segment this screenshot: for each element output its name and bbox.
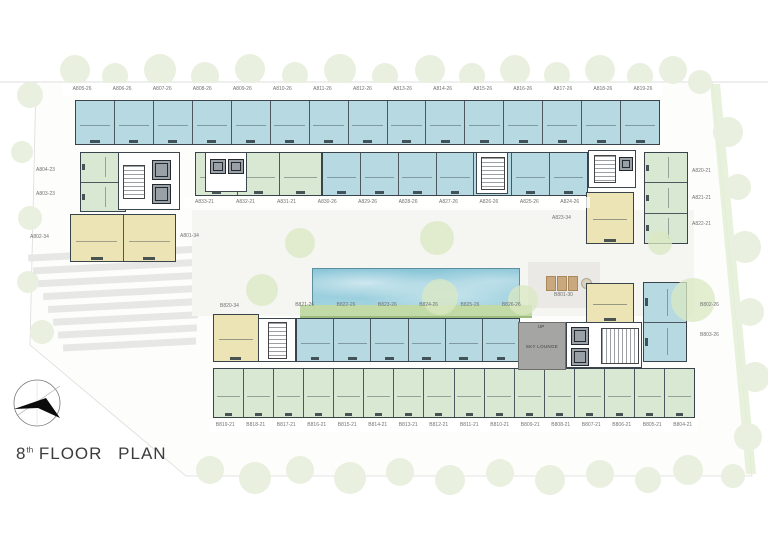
unit-label: A802-34 — [30, 234, 49, 240]
unit-cell — [465, 101, 504, 144]
tree — [635, 467, 661, 493]
tree — [30, 320, 54, 344]
unit-cell — [232, 101, 271, 144]
tree — [386, 458, 414, 486]
tree — [729, 231, 761, 263]
unit-label: A809-26 — [222, 86, 262, 93]
tree — [17, 82, 43, 108]
unit-label: A831-21 — [266, 199, 307, 206]
unit-label: B817-21 — [271, 422, 302, 429]
unit-label: A813-26 — [383, 86, 423, 93]
unit-label: B824-26 — [408, 302, 449, 312]
unit-strip-b-bottom — [213, 368, 695, 418]
tree — [144, 54, 176, 86]
unit-label: A826-26 — [469, 199, 509, 206]
row-b-mid-labels: B821-26B822-26B823-26B824-26B825-26B826-… — [284, 302, 532, 312]
tree — [586, 460, 614, 488]
unit-cell — [582, 101, 621, 144]
tree — [324, 54, 356, 86]
unit-label: A806-26 — [102, 86, 142, 93]
unit-label: A818-26 — [583, 86, 623, 93]
unit-cell — [545, 369, 575, 417]
unit-cell — [512, 153, 550, 195]
unit-label: A816-26 — [503, 86, 543, 93]
unit-label: A803-23 — [36, 191, 78, 198]
left-green-labels: A804-23A803-23 — [36, 158, 78, 206]
unit-cell — [424, 369, 454, 417]
tree — [486, 459, 514, 487]
unit-cell — [485, 369, 515, 417]
unit-cell — [214, 369, 244, 417]
unit-label: B804-21 — [668, 422, 699, 429]
unit-cell — [483, 319, 519, 361]
elevator — [152, 160, 171, 180]
tree — [688, 70, 712, 94]
tree — [235, 54, 265, 84]
unit-cell — [349, 101, 388, 144]
unit-cell — [280, 153, 321, 195]
unit-label: A821-21 — [692, 195, 732, 202]
unit-label: A827-26 — [428, 199, 468, 206]
tree — [435, 465, 465, 495]
unit-label: A825-26 — [509, 199, 549, 206]
unit-b820 — [213, 314, 259, 362]
sky-lounge-label: SKY LOUNGE — [526, 344, 558, 349]
floor-number-suffix: th — [26, 445, 33, 454]
unit-strip-left-yellow — [70, 214, 176, 262]
unit-label: B809-21 — [515, 422, 546, 429]
unit-cell — [193, 101, 232, 144]
unit-cell — [124, 215, 176, 261]
unit-label: A808-26 — [182, 86, 222, 93]
tree — [673, 455, 703, 485]
elevator — [571, 327, 589, 345]
unit-cell — [154, 101, 193, 144]
unit-cell — [635, 369, 665, 417]
unit-label: A833-21 — [184, 199, 225, 206]
right-b-labels: B802-26B803-26 — [700, 290, 740, 350]
tree — [18, 206, 42, 230]
unit-cell — [334, 319, 371, 361]
unit-strip-b-mid — [296, 318, 520, 362]
unit-cell — [605, 369, 635, 417]
unit-cell — [323, 153, 361, 195]
unit-cell — [244, 369, 274, 417]
tree — [713, 117, 743, 147]
elevator-core — [205, 152, 247, 192]
tree — [585, 55, 615, 85]
stairs — [123, 165, 145, 199]
unit-cell — [71, 215, 124, 261]
unit-label: B814-21 — [363, 422, 394, 429]
stair-core — [476, 152, 508, 194]
tree — [535, 465, 565, 495]
page-title: 8th FLOOR PLAN — [16, 444, 167, 464]
unit-label: A817-26 — [543, 86, 583, 93]
unit-label: B811-21 — [454, 422, 485, 429]
stairs — [594, 155, 616, 183]
unit-cell — [644, 323, 686, 362]
unit-cell — [115, 101, 154, 144]
unit-strip-a-top — [75, 100, 660, 145]
unit-cell — [645, 183, 687, 213]
elevator — [228, 159, 244, 174]
elevator — [210, 159, 226, 174]
stairs — [268, 322, 287, 359]
right-green-labels: A820-21A821-21A822-21 — [692, 158, 732, 238]
unit-label: B825-26 — [449, 302, 490, 312]
unit-cell — [334, 369, 364, 417]
unit-label: A830-26 — [307, 199, 347, 206]
unit-cell — [645, 153, 687, 183]
unit-cell — [364, 369, 394, 417]
unit-label: B826-26 — [491, 302, 532, 312]
unit-cell — [361, 153, 399, 195]
unit-label: B812-21 — [424, 422, 455, 429]
title-word-plan: PLAN — [118, 444, 166, 463]
unit-label: A822-21 — [692, 221, 732, 228]
tree — [11, 141, 33, 163]
unit-label: A815-26 — [463, 86, 503, 93]
compass-icon — [10, 376, 74, 432]
stair-elevator-core — [118, 152, 180, 210]
unit-label: A814-26 — [423, 86, 463, 93]
unit-stack-right-green — [644, 152, 688, 244]
unit-a823 — [586, 192, 634, 244]
unit-label: A801-34 — [180, 233, 199, 239]
unit-cell — [504, 101, 543, 144]
tree — [659, 56, 687, 84]
unit-label: B801-30 — [554, 292, 573, 298]
title-word-floor: FLOOR — [39, 444, 103, 463]
unit-cell — [645, 214, 687, 243]
unit-cell — [399, 153, 437, 195]
unit-label: B815-21 — [332, 422, 363, 429]
unit-cell — [621, 101, 659, 144]
tree — [60, 55, 90, 85]
unit-label: A805-26 — [62, 86, 102, 93]
pool-lounger — [568, 276, 578, 291]
tree — [334, 462, 366, 494]
tree — [740, 362, 768, 392]
unit-label: B820-34 — [220, 303, 239, 309]
up-label: UP — [538, 324, 544, 329]
floor-plan-canvas: A805-26A806-26A807-26A808-26A809-26A810-… — [0, 0, 768, 543]
row-b-bottom-labels: B819-21B818-21B817-21B816-21B815-21B814-… — [210, 419, 698, 432]
unit-cell — [644, 283, 686, 323]
elevator — [571, 348, 589, 366]
unit-cell — [409, 319, 446, 361]
unit-label: B810-21 — [485, 422, 516, 429]
stairs — [481, 157, 505, 190]
tree — [415, 55, 445, 85]
unit-label: B806-21 — [607, 422, 638, 429]
tree — [239, 462, 271, 494]
unit-label: A829-26 — [347, 199, 387, 206]
unit-label: A824-26 — [550, 199, 590, 206]
unit-b801 — [586, 283, 634, 323]
unit-cell — [543, 101, 582, 144]
unit-label: B822-26 — [325, 302, 366, 312]
unit-label: B819-21 — [210, 422, 241, 429]
unit-cell — [76, 101, 115, 144]
tree — [17, 271, 39, 293]
tree — [736, 298, 764, 326]
unit-label: A828-26 — [388, 199, 428, 206]
unit-cell — [297, 319, 334, 361]
pool-lounger — [557, 276, 567, 291]
unit-cell — [437, 153, 475, 195]
stair-core — [258, 318, 296, 362]
unit-label: B803-26 — [700, 332, 740, 339]
unit-cell — [310, 101, 349, 144]
row-a-mid-blue-labels: A830-26A829-26A828-26A827-26A826-26A825-… — [307, 197, 590, 208]
unit-label: B813-21 — [393, 422, 424, 429]
elevator — [152, 184, 171, 204]
unit-label: B808-21 — [546, 422, 577, 429]
unit-label: A811-26 — [302, 86, 342, 93]
elevator — [619, 157, 633, 171]
unit-label: A807-26 — [142, 86, 182, 93]
unit-cell — [550, 153, 587, 195]
unit-label: B816-21 — [302, 422, 333, 429]
tree — [721, 464, 745, 488]
unit-label: B805-21 — [637, 422, 668, 429]
unit-strip-a-mid-blue — [322, 152, 588, 196]
tree — [734, 423, 762, 451]
unit-stack-right-b — [643, 282, 687, 362]
unit-label: B802-26 — [700, 302, 740, 309]
row-a-mid-green-labels: A833-21A832-21A831-21 — [184, 197, 307, 208]
unit-cell — [446, 319, 483, 361]
unit-label: A819-26 — [623, 86, 663, 93]
unit-label: A810-26 — [262, 86, 302, 93]
unit-cell — [388, 101, 427, 144]
tree — [500, 55, 530, 85]
unit-label: A804-23 — [36, 167, 78, 174]
stair-core — [588, 150, 636, 188]
unit-cell — [304, 369, 334, 417]
unit-cell — [665, 369, 694, 417]
pool-lounger — [546, 276, 556, 291]
unit-cell — [371, 319, 408, 361]
unit-cell — [271, 101, 310, 144]
unit-cell — [515, 369, 545, 417]
floor-number: 8 — [16, 444, 26, 463]
unit-label: B821-26 — [284, 302, 325, 312]
unit-cell — [394, 369, 424, 417]
unit-cell — [426, 101, 465, 144]
unit-label: A832-21 — [225, 199, 266, 206]
stairs — [601, 328, 639, 364]
unit-label: A812-26 — [342, 86, 382, 93]
unit-cell — [274, 369, 304, 417]
unit-label: A823-34 — [552, 215, 571, 221]
unit-label: B823-26 — [367, 302, 408, 312]
tree — [196, 456, 224, 484]
unit-cell — [575, 369, 605, 417]
row-a-top-labels: A805-26A806-26A807-26A808-26A809-26A810-… — [62, 83, 663, 96]
sky-lounge: SKY LOUNGE — [518, 322, 566, 370]
unit-label: A820-21 — [692, 168, 732, 175]
tree — [286, 456, 314, 484]
unit-label: B807-21 — [576, 422, 607, 429]
unit-cell — [455, 369, 485, 417]
unit-label: B818-21 — [241, 422, 272, 429]
stair-elevator-core — [566, 322, 642, 368]
